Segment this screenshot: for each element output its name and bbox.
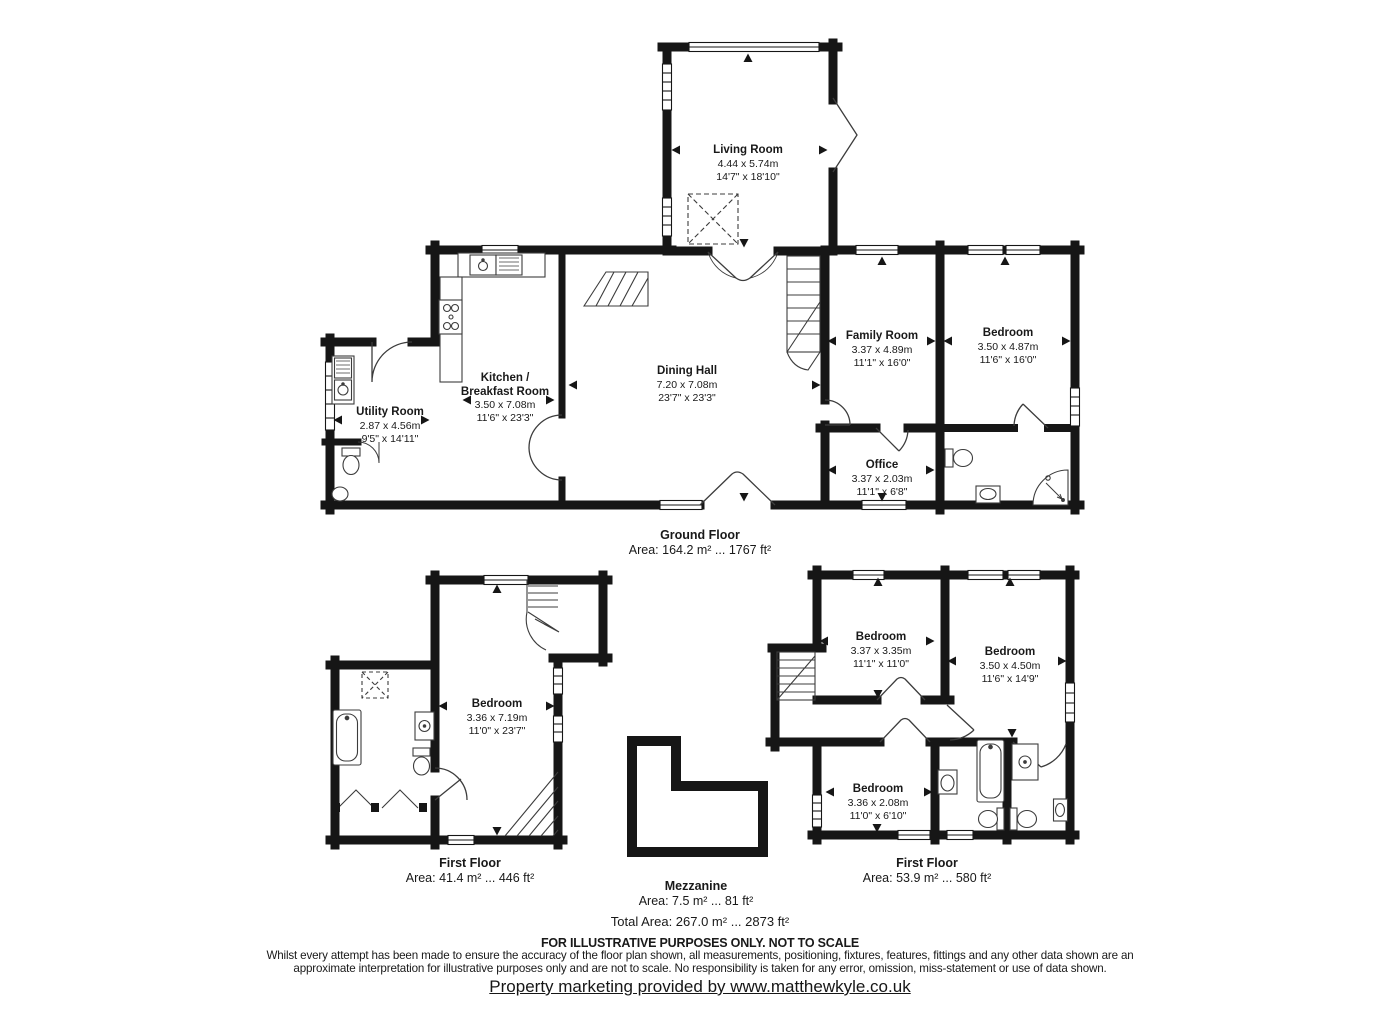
room-label-bedroom-ground: Bedroom 3.50 x 4.87m 11'6" x 16'0"	[978, 327, 1039, 367]
illustrative-notice: FOR ILLUSTRATIVE PURPOSES ONLY. NOT TO S…	[0, 936, 1400, 950]
caption-first-floor-left: First Floor Area: 41.4 m² ... 446 ft²	[406, 856, 535, 886]
mezzanine-outline	[632, 741, 763, 852]
marketing-link[interactable]: Property marketing provided by www.matth…	[489, 977, 910, 997]
room-label-office: Office 3.37 x 2.03m 11'1" x 6'8"	[852, 459, 913, 499]
total-area: Total Area: 267.0 m² ... 2873 ft²	[0, 914, 1400, 929]
measure-arrows	[334, 54, 1071, 836]
room-label-family-room: Family Room 3.37 x 4.89m 11'1" x 16'0"	[846, 330, 918, 370]
basin-icon	[332, 487, 348, 501]
room-label-utility-room: Utility Room 2.87 x 4.56m 9'5" x 14'11"	[356, 406, 424, 446]
disclaimer-line-1: Whilst every attempt has been made to en…	[0, 949, 1400, 963]
room-label-bedroom-first-left: Bedroom 3.36 x 7.19m 11'0" x 23'7"	[467, 698, 528, 738]
caption-first-floor-right: First Floor Area: 53.9 m² ... 580 ft²	[863, 856, 992, 886]
footer-row: Property marketing provided by www.matth…	[0, 977, 1400, 997]
caption-ground-floor: Ground Floor Area: 164.2 m² ... 1767 ft²	[629, 528, 771, 558]
hob-icon	[439, 300, 462, 334]
room-label-kitchen-breakfast-room: Kitchen / Breakfast Room 3.50 x 7.08m 11…	[461, 372, 549, 425]
fixtures	[332, 194, 1068, 830]
room-label-dining-hall: Dining Hall 7.20 x 7.08m 23'7" x 23'3"	[657, 365, 718, 405]
room-label-bedroom-first-right-2: Bedroom 3.50 x 4.50m 11'6" x 14'9"	[980, 646, 1041, 686]
floorplan-page: Living Room 4.44 x 5.74m 14'7" x 18'10" …	[0, 0, 1400, 1018]
skylight-icon	[688, 194, 738, 244]
toilet-icon	[945, 449, 953, 467]
doors	[358, 98, 1066, 800]
caption-mezzanine: Mezzanine Area: 7.5 m² ... 81 ft²	[639, 879, 754, 909]
floorplan-drawing	[0, 0, 1400, 1018]
toilet-icon	[1010, 808, 1017, 830]
toilet-icon	[342, 448, 360, 456]
room-label-bedroom-first-right-1: Bedroom 3.37 x 3.35m 11'1" x 11'0"	[851, 631, 912, 671]
skylight-icon	[362, 672, 388, 698]
disclaimer-line-2: approximate interpretation for illustrat…	[0, 962, 1400, 976]
toilet-icon	[413, 748, 430, 756]
ground-floor-walls	[325, 43, 1080, 510]
room-label-living-room: Living Room 4.44 x 5.74m 14'7" x 18'10"	[713, 144, 783, 184]
room-label-bedroom-first-right-3: Bedroom 3.36 x 2.08m 11'0" x 6'10"	[848, 783, 909, 823]
